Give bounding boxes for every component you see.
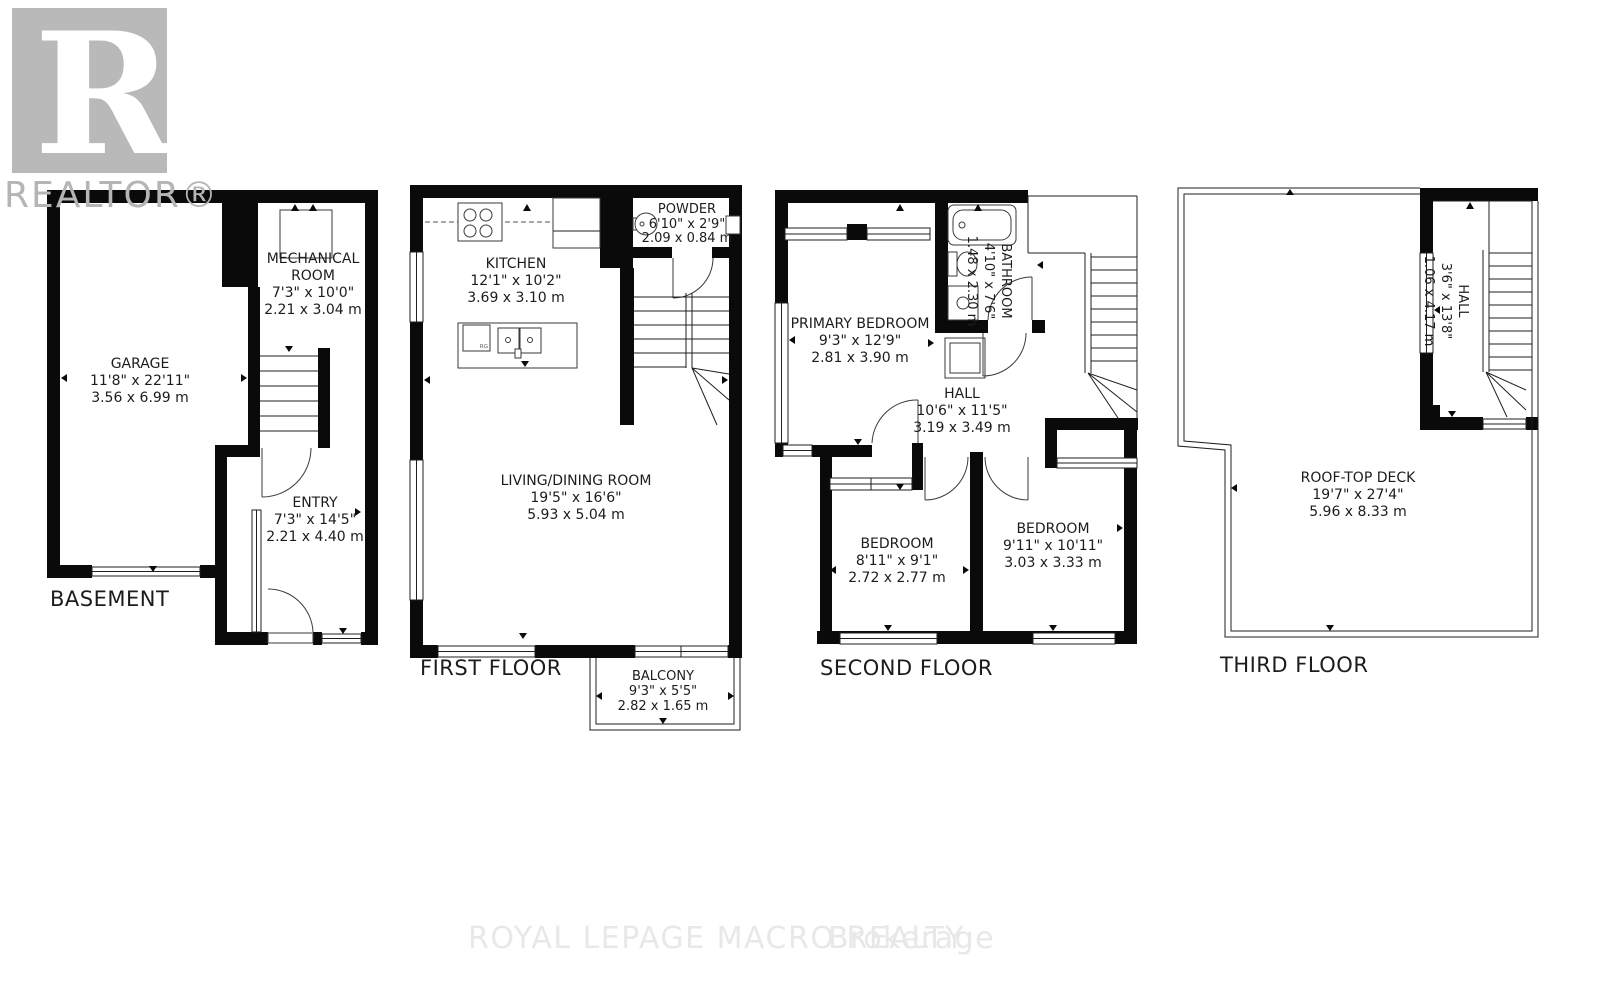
window-primary-top-2 bbox=[867, 228, 930, 240]
room-label-entry: ENTRY bbox=[292, 495, 338, 511]
kitchen-island: RG bbox=[458, 323, 577, 368]
room-label-hall3: HALL bbox=[1455, 284, 1470, 318]
window-bedroom1-bottom bbox=[840, 633, 937, 644]
room-dims-m-garage: 3.56 x 6.99 m bbox=[91, 390, 189, 406]
room-dims-ft-hall2: 10'6" x 11'5" bbox=[916, 403, 1007, 419]
room-dims-ft-powder: 6'10" x 2'9" bbox=[649, 217, 725, 232]
room-dims-ft-balcony: 9'3" x 5'5" bbox=[629, 684, 697, 699]
window-left-upper bbox=[410, 252, 423, 322]
deck-outline bbox=[1178, 188, 1538, 637]
window-bedroom2-top bbox=[1057, 458, 1137, 468]
room-dims-ft-mechanical: 7'3" x 10'0" bbox=[272, 285, 354, 301]
room-dims-m-primary-bedroom: 2.81 x 3.90 m bbox=[811, 350, 909, 366]
stairs-basement bbox=[260, 356, 318, 431]
room-dims-ft-primary-bedroom: 9'3" x 12'9" bbox=[819, 333, 901, 349]
door-primary-bedroom bbox=[872, 400, 918, 443]
room-dims-ft-rooftop-deck: 19'7" x 27'4" bbox=[1312, 487, 1403, 503]
room-label-living-dining: LIVING/DINING ROOM bbox=[501, 473, 652, 489]
room-dims-ft-hall3: 3'6" x 13'8" bbox=[1438, 263, 1453, 339]
powder-door bbox=[673, 258, 713, 298]
door-bedroom1 bbox=[925, 457, 968, 500]
room-dims-ft-bedroom1: 8'11" x 9'1" bbox=[856, 553, 938, 569]
front-door bbox=[268, 589, 313, 643]
room-label-garage: GARAGE bbox=[111, 356, 170, 372]
room-label-bathroom-group: BATHROOM 4'10" x 7'6" 1.48 x 2.30 m bbox=[964, 236, 1013, 327]
window-left-lower bbox=[410, 460, 423, 600]
room-label-primary-bedroom: PRIMARY BEDROOM bbox=[791, 316, 930, 332]
window-bedroom2-bottom bbox=[1033, 633, 1115, 644]
balcony-slider bbox=[635, 646, 728, 657]
brokerage-watermark: ROYAL LEPAGE MACRO REALTY Brokerage bbox=[468, 921, 995, 956]
door-stair-to-entry bbox=[262, 448, 311, 497]
door-bedroom2 bbox=[985, 457, 1028, 500]
room-label-powder: POWDER bbox=[658, 202, 716, 217]
room-label-mechanical-2: ROOM bbox=[291, 268, 335, 284]
floor-plan-third: HALL 3'6" x 13'8" 1.06 x 4.17 m ROOF-TOP… bbox=[1178, 188, 1538, 677]
stairs-first bbox=[634, 293, 729, 425]
room-label-bedroom2: BEDROOM bbox=[1016, 521, 1089, 537]
door-linen-closet bbox=[983, 333, 1026, 376]
room-dims-m-entry: 2.21 x 4.40 m bbox=[266, 529, 364, 545]
room-dims-ft-living-dining: 19'5" x 16'6" bbox=[530, 490, 621, 506]
floor-title-third: THIRD FLOOR bbox=[1219, 653, 1368, 677]
watermark-suffix: Brokerage bbox=[828, 921, 995, 956]
realtor-logo-letter: R bbox=[34, 0, 175, 193]
stove bbox=[458, 203, 502, 241]
room-label-hall2: HALL bbox=[944, 386, 980, 402]
realtor-logo-text: REALTOR® bbox=[4, 175, 219, 216]
entry-slider bbox=[252, 510, 261, 632]
window-primary-bottom bbox=[783, 445, 812, 456]
room-dims-ft-bedroom2: 9'11" x 10'11" bbox=[1003, 538, 1103, 554]
window-left-primary bbox=[775, 303, 788, 443]
room-dims-m-living-dining: 5.93 x 5.04 m bbox=[527, 507, 625, 523]
room-dims-m-mechanical: 2.21 x 3.04 m bbox=[264, 302, 362, 318]
room-label-hall3-group: HALL 3'6" x 13'8" 1.06 x 4.17 m bbox=[1421, 256, 1470, 347]
island-tag: RG bbox=[480, 344, 488, 350]
floorplan-image: GARAGE 11'8" x 22'11" 3.56 x 6.99 m MECH… bbox=[0, 0, 1600, 999]
room-dims-m-kitchen: 3.69 x 3.10 m bbox=[467, 290, 565, 306]
room-label-mechanical: MECHANICAL bbox=[267, 251, 360, 267]
room-label-kitchen: KITCHEN bbox=[486, 256, 547, 272]
room-dims-m-bedroom2: 3.03 x 3.33 m bbox=[1004, 555, 1102, 571]
room-dims-m-powder: 2.09 x 0.84 m bbox=[642, 231, 733, 246]
floor-plan-basement: GARAGE 11'8" x 22'11" 3.56 x 6.99 m MECH… bbox=[47, 190, 378, 645]
room-label-bedroom1: BEDROOM bbox=[860, 536, 933, 552]
garage-door bbox=[92, 567, 200, 576]
room-dims-m-bedroom1: 2.72 x 2.77 m bbox=[848, 570, 946, 586]
realtor-logo: R REALTOR® bbox=[4, 0, 219, 216]
room-dims-m-balcony: 2.82 x 1.65 m bbox=[618, 699, 709, 714]
window-stair-bottom bbox=[1483, 419, 1526, 429]
room-dims-ft-bathroom: 4'10" x 7'6" bbox=[981, 243, 996, 319]
floor-plan-second: PRIMARY BEDROOM 9'3" x 12'9" 2.81 x 3.90… bbox=[775, 190, 1138, 680]
room-label-bathroom: BATHROOM bbox=[998, 243, 1013, 318]
stairs-second bbox=[1028, 196, 1137, 418]
room-dims-m-hall2: 3.19 x 3.49 m bbox=[913, 420, 1011, 436]
walls-first bbox=[410, 185, 742, 658]
floor-title-second: SECOND FLOOR bbox=[820, 656, 993, 680]
room-dims-ft-garage: 11'8" x 22'11" bbox=[90, 373, 190, 389]
floor-title-first: FIRST FLOOR bbox=[420, 656, 562, 680]
entry-window bbox=[322, 634, 361, 643]
window-primary-top-1 bbox=[785, 228, 847, 240]
room-dims-ft-entry: 7'3" x 14'5" bbox=[274, 512, 356, 528]
floor-title-basement: BASEMENT bbox=[50, 587, 169, 611]
room-dims-m-rooftop-deck: 5.96 x 8.33 m bbox=[1309, 504, 1407, 520]
floor-plan-first: RG bbox=[410, 185, 742, 730]
room-dims-m-hall3: 1.06 x 4.17 m bbox=[1421, 256, 1436, 347]
room-dims-m-bathroom: 1.48 x 2.30 m bbox=[964, 236, 979, 327]
room-dims-ft-kitchen: 12'1" x 10'2" bbox=[470, 273, 561, 289]
room-label-balcony: BALCONY bbox=[632, 669, 694, 684]
linen-closet bbox=[945, 338, 985, 378]
kitchen-counter bbox=[425, 198, 600, 248]
room-label-rooftop-deck: ROOF-TOP DECK bbox=[1301, 470, 1416, 486]
